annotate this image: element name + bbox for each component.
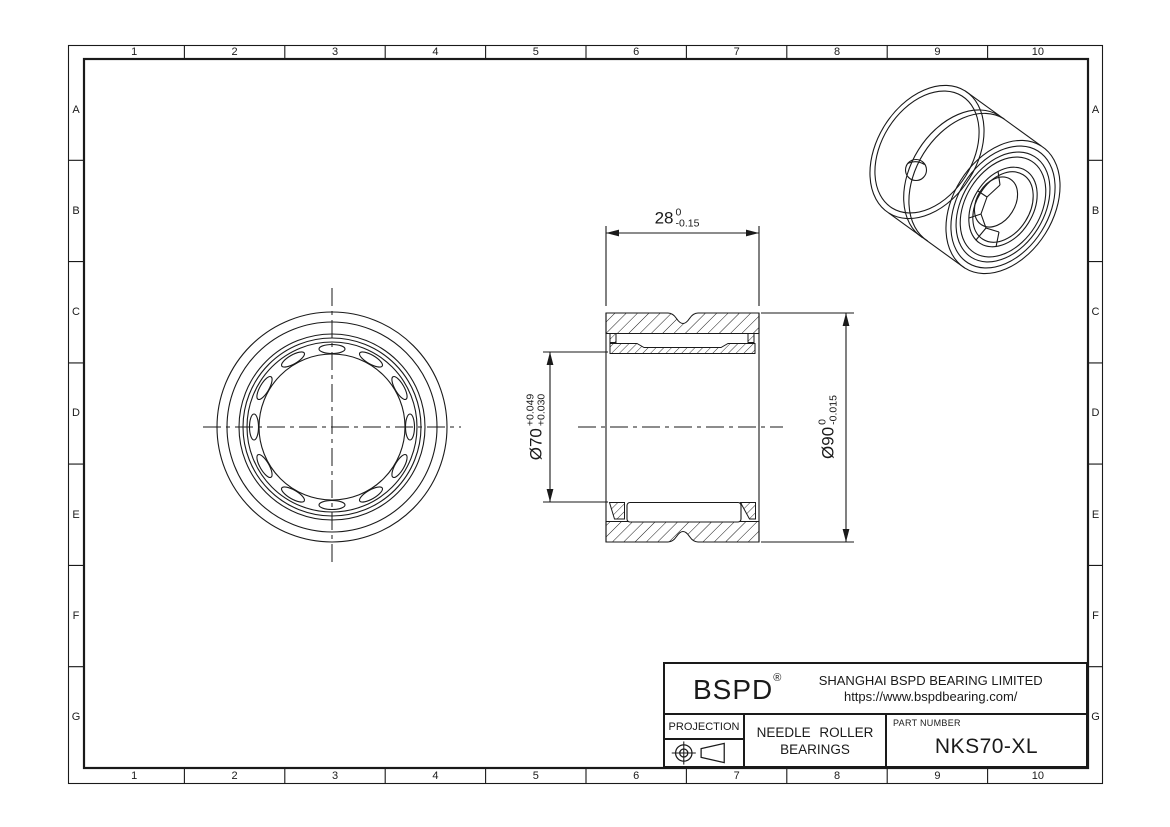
dim-width-tol-upper: 0 (675, 208, 681, 219)
dim-width: 28 0 -0.15 (655, 208, 700, 229)
product-name-cell: NEEDLE ROLLER BEARINGS (745, 715, 887, 766)
cage-section-bottom-right (741, 503, 756, 520)
grid-row-label: B (1088, 160, 1103, 261)
grid-col-label: 6 (586, 768, 686, 783)
grid-col-label: 5 (486, 45, 586, 59)
engineering-drawing-sheet: 1 2 3 4 5 6 7 8 9 10 1 2 3 4 5 6 7 8 9 1… (0, 0, 1170, 827)
needle-roller-section (627, 503, 741, 523)
grid-col-label: 5 (486, 768, 586, 783)
ring-lip-left (610, 334, 616, 343)
grid-row-label: B (68, 160, 84, 261)
cage-section-bottom-left (610, 503, 625, 520)
grid-col-label: 2 (184, 45, 284, 59)
grid-col-label: 1 (84, 768, 184, 783)
website-url: https://www.bspdbearing.com/ (781, 689, 1080, 705)
part-number-label: PART NUMBER (893, 718, 961, 728)
projection-label: PROJECTION (665, 715, 743, 740)
grid-col-label: 3 (285, 45, 385, 59)
dim-width-value: 28 (655, 208, 674, 228)
dim-outer-tol-lower: -0.015 (828, 395, 839, 425)
projection-symbol-icon (665, 740, 743, 766)
dim-outer: Ø90 0 -0.015 (818, 395, 839, 459)
dimension-lines (543, 226, 854, 542)
grid-col-label: 7 (686, 768, 786, 783)
grid-col-label: 1 (84, 45, 184, 59)
grid-col-label: 9 (887, 45, 987, 59)
grid-col-label: 10 (988, 768, 1088, 783)
grid-cols-bottom: 1 2 3 4 5 6 7 8 9 10 (84, 768, 1088, 783)
grid-row-label: C (68, 262, 84, 363)
bspd-logo: BSPD® (665, 673, 781, 704)
logo-text: BSPD (693, 674, 773, 705)
product-line1: NEEDLE ROLLER (757, 724, 874, 741)
dim-outer-tol-upper: 0 (818, 419, 829, 425)
outer-ring-top-section (606, 313, 759, 334)
grid-col-label: 9 (887, 768, 987, 783)
grid-rows-left: A B C D E F G (68, 59, 84, 768)
grid-row-label: D (68, 363, 84, 464)
section-view (578, 313, 783, 542)
dim-bore: Ø70 +0.049 +0.030 (526, 394, 547, 461)
cage-section-top (610, 344, 755, 354)
grid-col-label: 4 (385, 768, 485, 783)
grid-col-label: 8 (787, 768, 887, 783)
dim-width-tol-lower: -0.15 (675, 218, 699, 229)
grid-row-label: F (1088, 565, 1103, 666)
part-number-value: NKS70-XL (887, 735, 1086, 759)
title-block: BSPD® SHANGHAI BSPD BEARING LIMITED http… (663, 662, 1088, 768)
grid-col-label: 2 (184, 768, 284, 783)
grid-row-label: A (68, 59, 84, 160)
grid-row-label: G (1088, 667, 1103, 768)
dim-outer-value: Ø90 (818, 427, 838, 459)
projection-cell: PROJECTION (665, 715, 745, 766)
grid-row-label: A (1088, 59, 1103, 160)
grid-col-label: 7 (686, 45, 786, 59)
grid-row-label: G (68, 667, 84, 768)
grid-col-label: 3 (285, 768, 385, 783)
grid-col-label: 10 (988, 45, 1088, 59)
front-view (203, 288, 461, 566)
grid-row-label: E (68, 464, 84, 565)
title-block-header: BSPD® SHANGHAI BSPD BEARING LIMITED http… (665, 664, 1086, 715)
company-name: SHANGHAI BSPD BEARING LIMITED (781, 673, 1080, 689)
grid-cols-top: 1 2 3 4 5 6 7 8 9 10 (84, 45, 1088, 59)
grid-row-label: D (1088, 363, 1103, 464)
grid-row-label: E (1088, 464, 1103, 565)
dim-bore-value: Ø70 (526, 428, 546, 460)
grid-col-label: 8 (787, 45, 887, 59)
dim-bore-tol-lower: +0.030 (536, 394, 547, 426)
grid-row-label: F (68, 565, 84, 666)
grid-rows-right: A B C D E F G (1088, 59, 1103, 768)
grid-col-label: 4 (385, 45, 485, 59)
outer-ring-bottom-section (606, 522, 759, 543)
part-number-cell: PART NUMBER NKS70-XL (887, 715, 1086, 766)
iso-view (846, 64, 1083, 294)
registered-mark: ® (773, 672, 781, 684)
dim-bore-tol-upper: +0.049 (526, 394, 537, 426)
product-line2: BEARINGS (780, 741, 850, 758)
grid-row-label: C (1088, 262, 1103, 363)
ring-lip-right (748, 334, 754, 343)
grid-col-label: 6 (586, 45, 686, 59)
